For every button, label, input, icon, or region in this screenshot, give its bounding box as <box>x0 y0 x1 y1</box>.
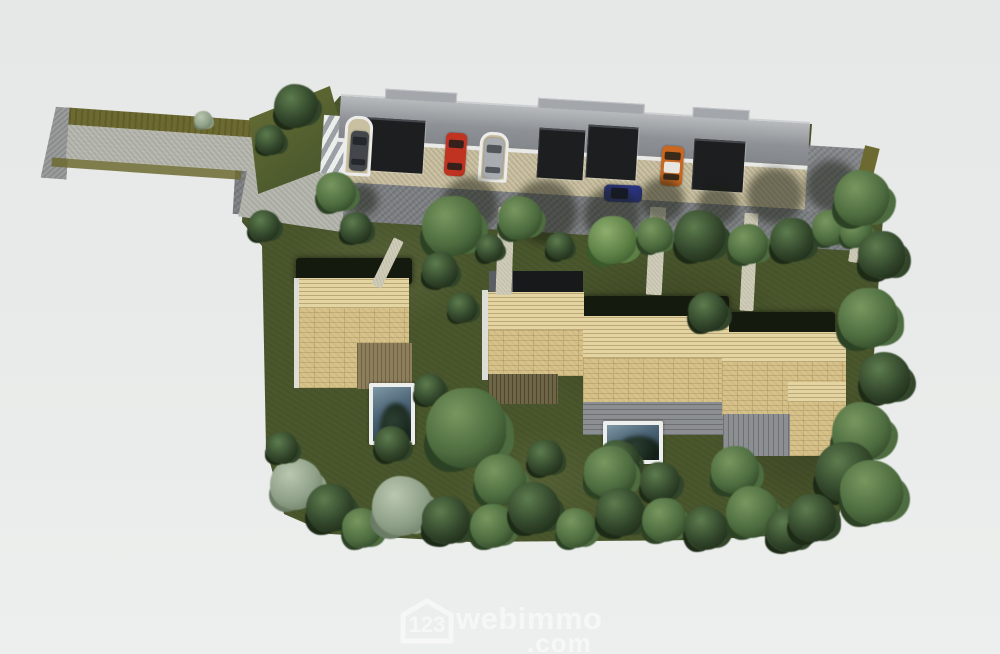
house-3-wing-ridge <box>788 382 846 402</box>
tree <box>788 494 836 542</box>
svg-text:123: 123 <box>409 612 446 637</box>
silver-car <box>483 137 505 179</box>
watermark-tld: .com <box>527 628 592 654</box>
tree <box>770 218 814 262</box>
tree <box>374 426 410 462</box>
red-car <box>444 132 468 176</box>
tree <box>556 508 596 548</box>
tree <box>642 498 686 542</box>
roof-bump <box>692 107 749 120</box>
tree <box>266 432 298 464</box>
black-car <box>349 130 370 171</box>
tree <box>508 482 560 534</box>
tree <box>688 292 728 332</box>
tree <box>527 440 563 476</box>
tree-shadow <box>640 178 684 222</box>
garage-flat-roof <box>537 128 586 181</box>
car-rear-window <box>485 166 500 174</box>
house-3-roof-ridge <box>722 332 846 362</box>
tree <box>684 506 728 550</box>
tree <box>422 252 458 288</box>
house-1-roof-ridge <box>299 278 409 308</box>
tree <box>596 488 644 536</box>
roof-bump <box>385 89 457 103</box>
tree <box>858 231 906 279</box>
tree <box>194 111 212 129</box>
car-rear-window <box>351 159 365 166</box>
tree <box>588 216 636 264</box>
tree <box>859 352 911 404</box>
tree <box>422 196 482 256</box>
car-windshield <box>664 152 681 161</box>
aerial-site-render: 123 webimmo .com <box>0 0 1000 654</box>
tree <box>340 212 372 244</box>
tree-shadow <box>747 168 803 224</box>
roof-bump <box>538 98 645 114</box>
car-roof <box>664 161 680 173</box>
car-windshield <box>487 144 502 153</box>
tree <box>422 496 470 544</box>
tree <box>255 125 285 155</box>
tree <box>316 172 356 212</box>
house-logo-icon: 123 <box>400 598 454 644</box>
watermark: 123 webimmo .com <box>388 596 628 654</box>
house-2a-roof <box>488 292 584 376</box>
car-windshield <box>353 137 367 146</box>
tree <box>840 460 904 524</box>
garage-flat-roof <box>585 125 638 181</box>
house-2a-roof-ridge <box>488 292 584 330</box>
tree <box>838 288 898 348</box>
tree <box>728 224 768 264</box>
car-windshield <box>448 139 465 149</box>
tree <box>546 232 574 260</box>
garage-flat-roof <box>364 117 425 173</box>
house-2a-deck <box>488 374 558 404</box>
tree <box>476 234 504 262</box>
tree <box>637 217 673 253</box>
car-rear-window <box>446 163 462 171</box>
tree <box>447 293 477 323</box>
